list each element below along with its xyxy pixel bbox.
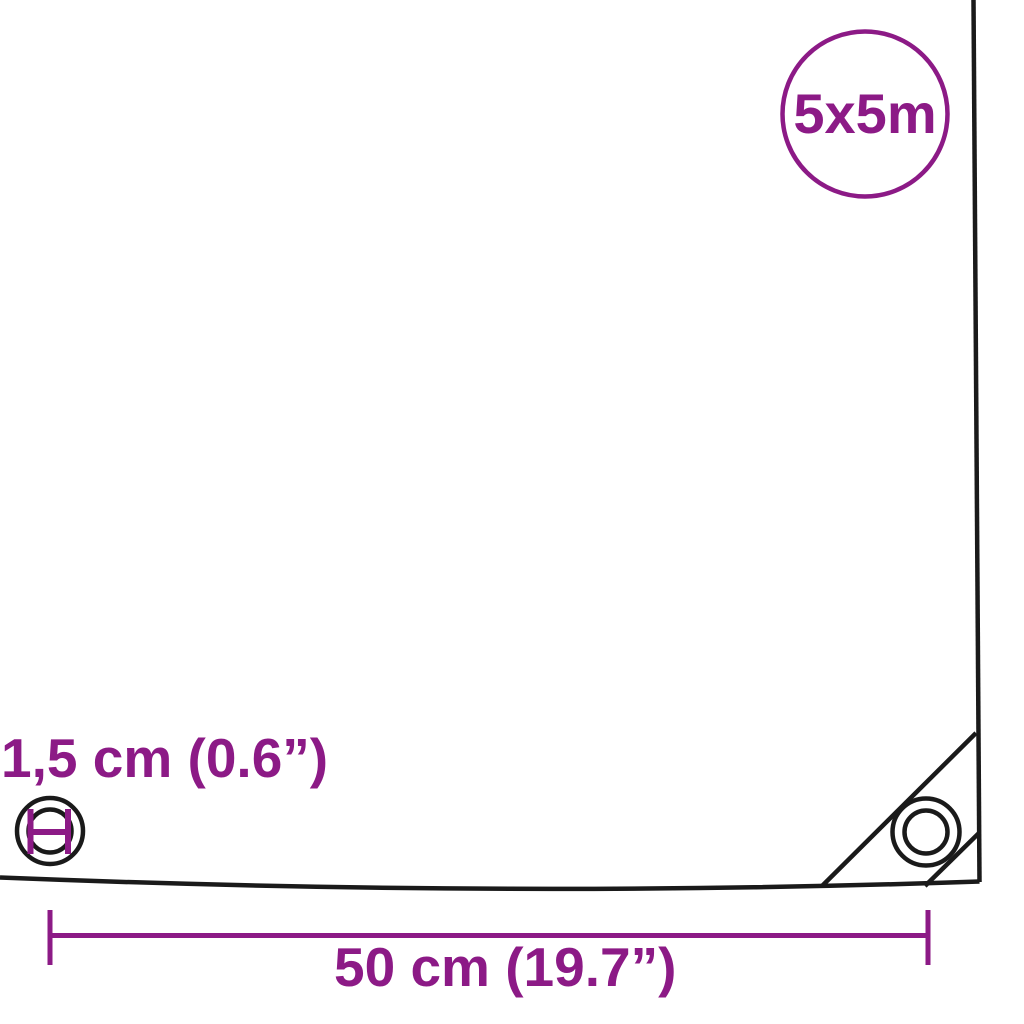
size-badge-label: 5x5m <box>793 86 936 142</box>
product-dimension-diagram: 5x5m 1,5 cm (0.6”) 50 cm (19.7”) <box>0 0 1024 1024</box>
eyelet-diameter-label: 1,5 cm (0.6”) <box>1 731 328 786</box>
tarp-right-edge <box>974 0 980 882</box>
eyelet-spacing-label: 50 cm (19.7”) <box>334 940 676 995</box>
tarp-bottom-edge <box>0 878 980 889</box>
tarpaulin-outline-svg <box>0 0 1024 1024</box>
